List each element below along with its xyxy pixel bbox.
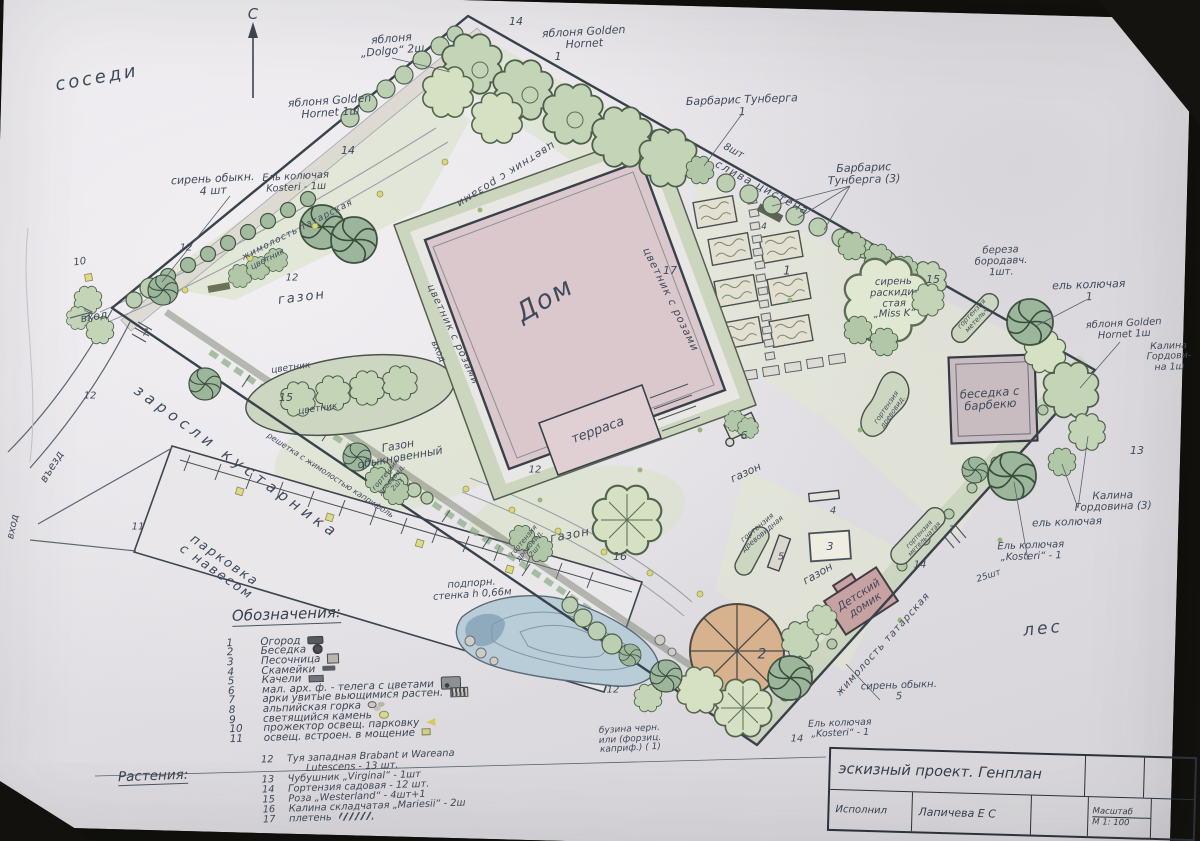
north-arrow <box>248 22 258 98</box>
legend-num: 11 <box>230 732 264 745</box>
paving-light-icon <box>422 728 431 735</box>
arch-icon <box>450 687 468 698</box>
bench-icon <box>322 666 335 671</box>
scale-cell: Масштаб М 1: 100 <box>1088 798 1152 838</box>
wattle-fence-icon <box>338 812 372 821</box>
plants-heading: Растения: <box>118 767 189 786</box>
bbq-gazebo <box>949 355 1038 444</box>
sandbox <box>809 531 851 562</box>
scale-value: М 1: 100 <box>1092 817 1150 829</box>
rockery-icon <box>368 701 377 708</box>
executor-label: Исполнил <box>829 790 913 831</box>
plants-list: 12Туя западная Brabant и Wareana Lutesce… <box>261 748 466 825</box>
road <box>8 228 130 468</box>
sandbox-icon <box>327 653 339 663</box>
photo-stage: С соседи яблоня „Dolgo“ 2ш 14 яблоня Gol… <box>0 0 1200 841</box>
legend-heading: Обозначения: <box>232 603 342 627</box>
plant-num: 17 <box>263 815 289 826</box>
bench-play <box>809 490 840 501</box>
title-block: эскизный проект. Генплан Исполнил Лапиче… <box>827 747 1197 841</box>
garden-icon <box>307 636 323 645</box>
legend-list: 1Огород 2Беседка 3Песочница 4Скамейки 5К… <box>226 630 469 744</box>
plant-num: 12 <box>261 755 287 766</box>
drawing-title: эскизный проект. Генплан <box>830 749 1086 797</box>
executor-name: Лапичева Е С <box>912 793 1032 835</box>
plant-text: плетень <box>289 813 332 824</box>
site-plan-drawing <box>0 0 1200 841</box>
spotlight-icon <box>426 718 435 726</box>
